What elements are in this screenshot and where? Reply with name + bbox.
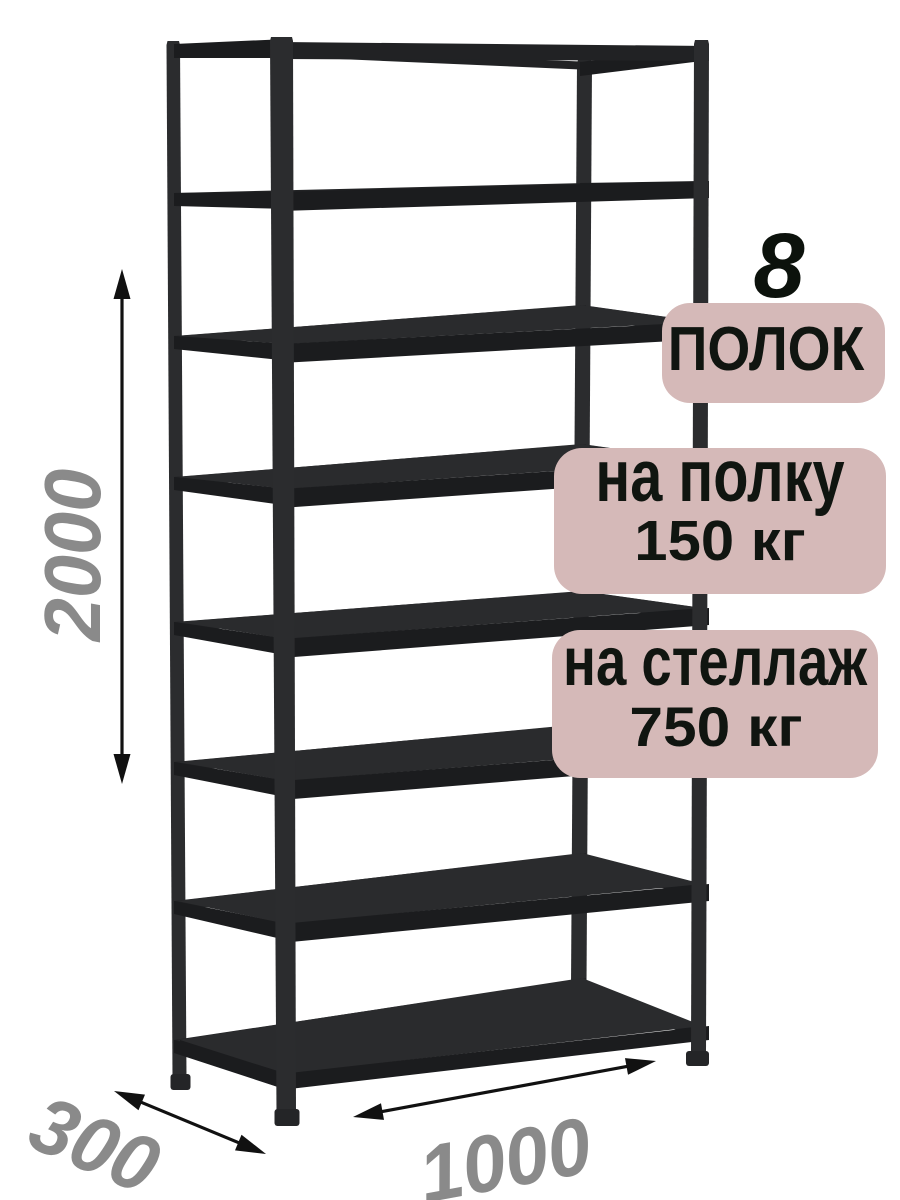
svg-text:2000: 2000 <box>28 469 117 644</box>
svg-text:1000: 1000 <box>412 1100 598 1200</box>
svg-text:300: 300 <box>18 1078 172 1200</box>
